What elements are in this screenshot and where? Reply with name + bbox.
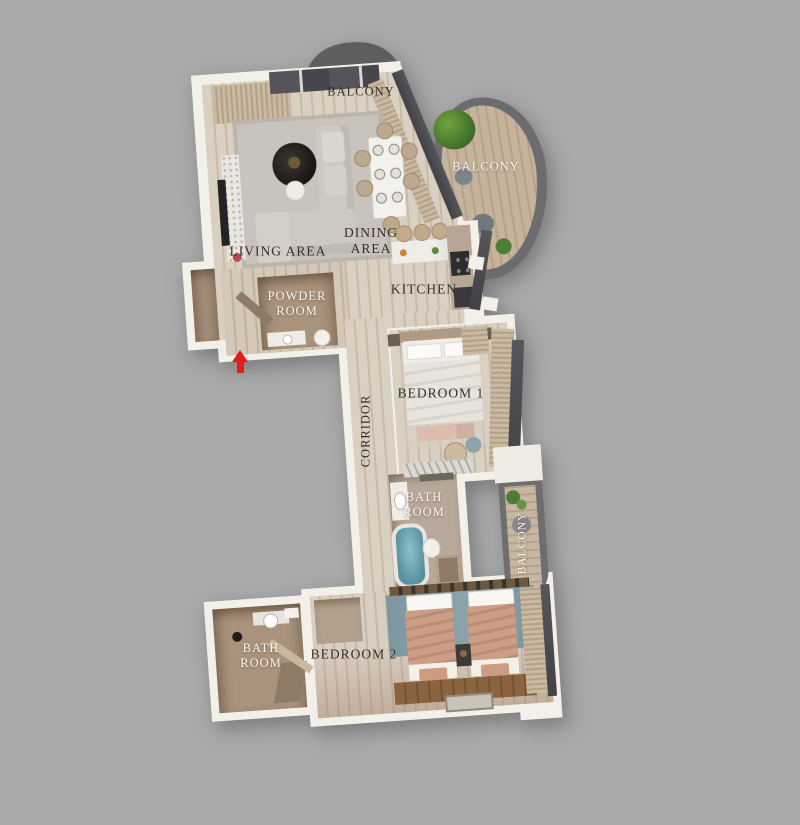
room-label-corridor: CORRIDOR — [359, 395, 374, 468]
room-label-bathroom-1: BATH ROOM — [403, 490, 445, 520]
floor-plan-canvas: BALCONY BALCONY LIVING AREA DINING AREA … — [0, 0, 800, 800]
room-label-living-area: LIVING AREA — [230, 244, 327, 259]
room-label-balcony-top: BALCONY — [327, 85, 394, 100]
entrance-arrow-icon — [232, 350, 248, 374]
label-layer: BALCONY BALCONY LIVING AREA DINING AREA … — [0, 0, 800, 800]
room-label-bedroom-2: BEDROOM 2 — [311, 647, 398, 662]
room-label-balcony-right: BALCONY — [452, 160, 519, 175]
room-label-balcony-middle: BALCONY — [516, 512, 531, 575]
room-label-bathroom-2: BATH ROOM — [240, 641, 282, 671]
room-label-powder-room: POWDER ROOM — [268, 289, 327, 319]
entrance-arrow-head — [232, 350, 248, 362]
room-label-dining-area: DINING AREA — [344, 225, 398, 257]
room-label-bedroom-1: BEDROOM 1 — [398, 386, 485, 401]
room-label-kitchen: KITCHEN — [391, 282, 457, 297]
entrance-arrow-stem — [237, 362, 244, 373]
